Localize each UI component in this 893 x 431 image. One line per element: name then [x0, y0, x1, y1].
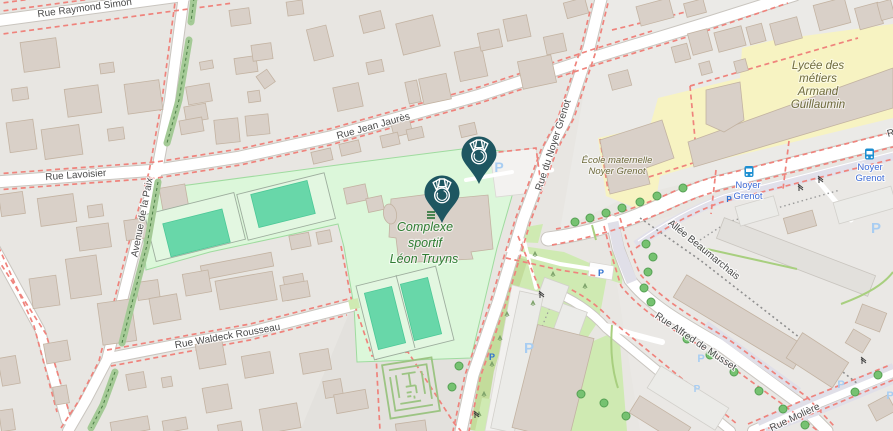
svg-text:Léon Truyns: Léon Truyns	[390, 252, 459, 266]
svg-text:École maternelle: École maternelle	[582, 155, 653, 166]
svg-text:métiers: métiers	[799, 73, 837, 85]
svg-text:Grenot: Grenot	[855, 173, 884, 184]
svg-text:Complexe: Complexe	[397, 220, 453, 234]
svg-text:P: P	[524, 340, 534, 357]
svg-text:P: P	[494, 159, 503, 175]
svg-text:P: P	[694, 384, 701, 395]
svg-text:P: P	[598, 268, 604, 278]
svg-text:P: P	[886, 390, 893, 402]
svg-text:sportif: sportif	[408, 236, 444, 250]
svg-text:Noyer: Noyer	[857, 162, 882, 173]
svg-text:Guillaumin: Guillaumin	[791, 99, 845, 111]
svg-text:P: P	[697, 353, 704, 365]
svg-text:Noyer Grenot: Noyer Grenot	[588, 166, 645, 177]
svg-text:Armand: Armand	[797, 86, 839, 98]
svg-text:P: P	[837, 379, 844, 391]
svg-text:P: P	[489, 352, 495, 362]
svg-text:Lycée des: Lycée des	[792, 60, 844, 72]
svg-text:P: P	[871, 220, 881, 237]
svg-text:P: P	[726, 195, 732, 204]
svg-text:Noyer: Noyer	[735, 180, 760, 191]
svg-text:Grenot: Grenot	[733, 191, 762, 202]
